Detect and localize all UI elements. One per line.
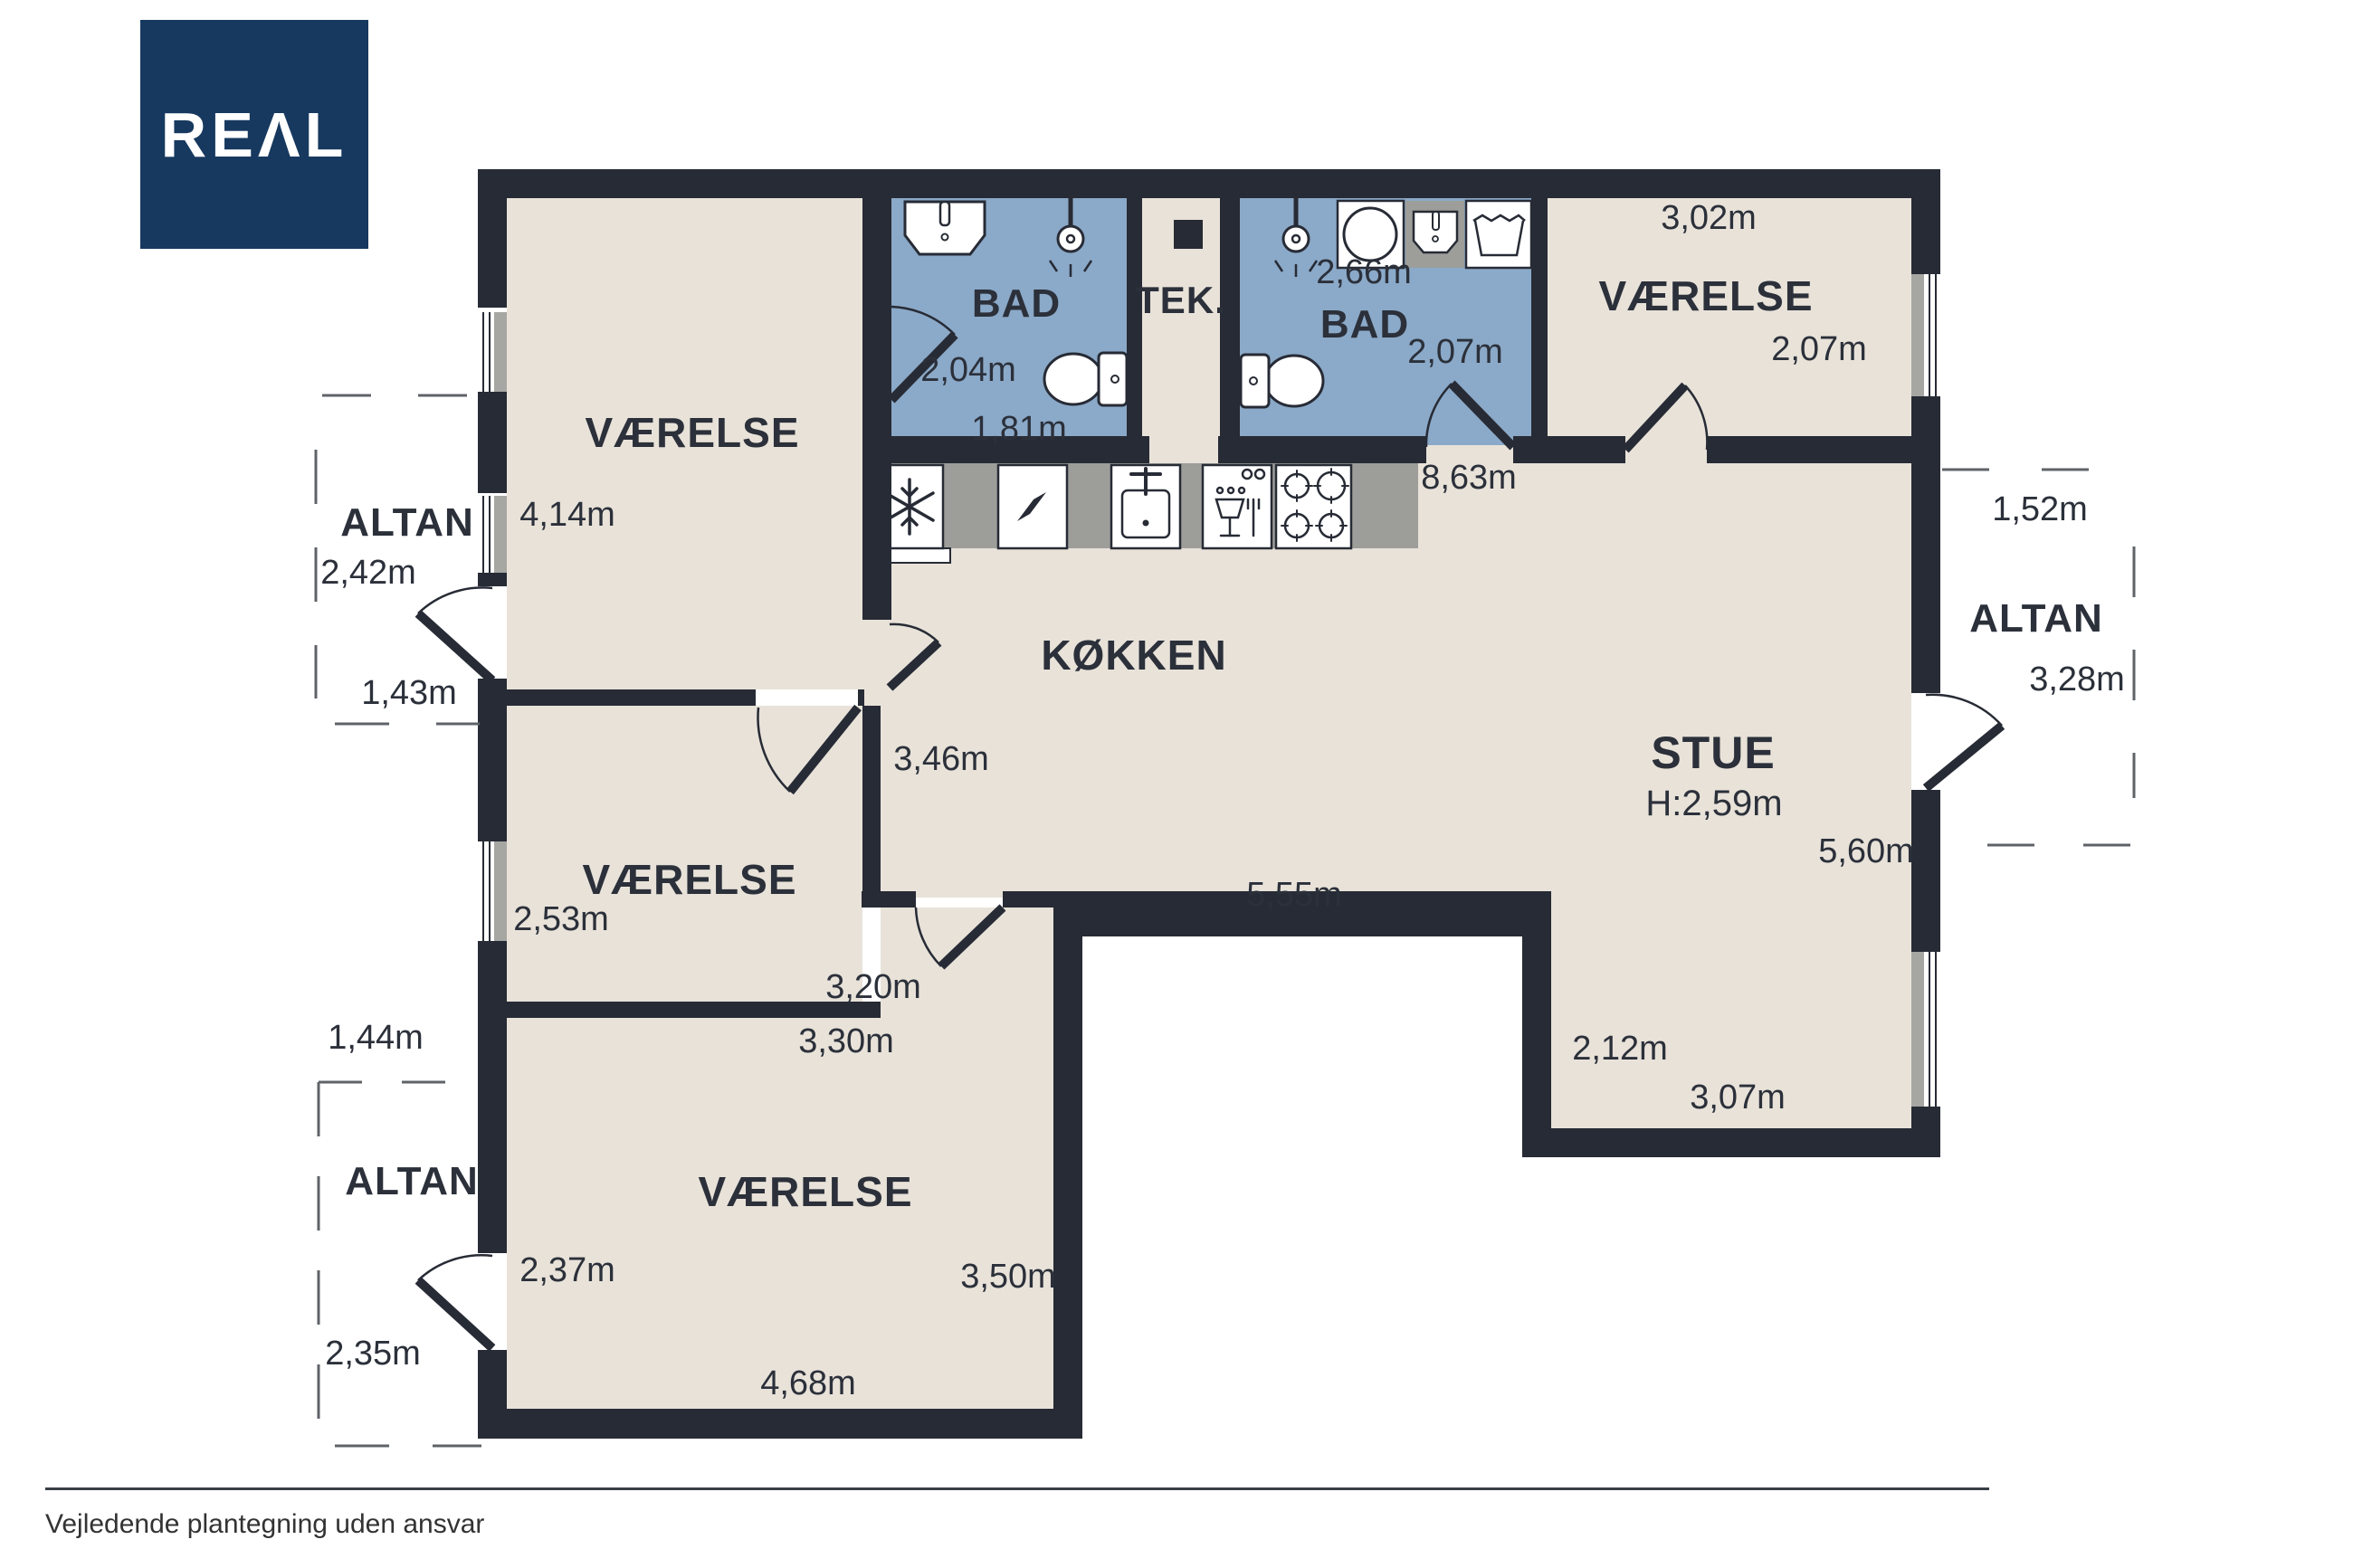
label-dim-h-2-59: H:2,59m [1645, 784, 1782, 823]
label-dim-1-81: 1,81m [971, 410, 1067, 448]
label-dim-5-55: 5,55m [1246, 876, 1342, 914]
wall-kitchen-band [1707, 436, 1911, 463]
wall-room-d-right [1053, 898, 1082, 1409]
label-room-altan-bl: ALTAN [345, 1159, 479, 1203]
laundry-tub-icon [1466, 201, 1531, 268]
real-logo-text: REΛL [161, 99, 348, 171]
wall-tek-bath2 [1220, 198, 1240, 463]
wall-room-a-bottom [507, 689, 756, 706]
label-room-altan-tl: ALTAN [340, 500, 474, 545]
wall-right [1911, 396, 1940, 693]
wall-kitchen-band [1513, 436, 1625, 463]
label-dim-3-46: 3,46m [893, 740, 989, 778]
footer-divider [45, 1487, 1989, 1490]
wall-right [1911, 790, 1940, 952]
wall-room-a-bottom [858, 689, 864, 706]
wall-left [478, 679, 507, 841]
label-room-vaerelse-d: VÆRELSE [698, 1168, 912, 1215]
label-dim-3-30: 3,30m [798, 1022, 894, 1060]
label-dim-4-68: 4,68m [760, 1364, 856, 1402]
dishwasher-icon [1203, 465, 1272, 548]
wall-left [478, 941, 507, 1253]
toilet-icon [1241, 355, 1323, 407]
vent-icon [1174, 220, 1203, 249]
label-dim-3-07: 3,07m [1690, 1079, 1786, 1117]
label-dim-1-43: 1,43m [361, 674, 457, 712]
label-dim-2-12: 2,12m [1572, 1030, 1668, 1068]
label-dim-3-28: 3,28m [2029, 660, 2125, 698]
footer-disclaimer: Vejledende plantegning uden ansvar [45, 1509, 484, 1540]
window [478, 496, 507, 573]
label-dim-2-04: 2,04m [920, 351, 1016, 389]
wall-hall [1003, 891, 1082, 908]
wall-bottom-room-d [478, 1409, 1082, 1439]
sink-icon [1111, 465, 1180, 548]
wall-left [478, 389, 507, 493]
real-logo: REΛL [140, 20, 368, 249]
wall-right [1911, 198, 1940, 274]
label-dim-1-52: 1,52m [1992, 490, 2088, 528]
wall-bath2-room-b [1531, 198, 1548, 463]
wall-room-c-right [862, 706, 881, 908]
label-room-vaerelse-c: VÆRELSE [582, 856, 796, 903]
floorplan-page: VÆRELSE4,14mALTAN2,42m1,43mBAD2,04m1,81m… [0, 0, 2353, 1568]
hand-basin-icon [905, 202, 985, 254]
label-room-tek: TEK. [1136, 279, 1226, 321]
label-dim-2-66: 2,66m [1316, 253, 1412, 291]
label-room-bad-2: BAD [1320, 302, 1409, 347]
door-balcony-right [1926, 695, 2002, 788]
room-c-floor [507, 706, 862, 1002]
label-dim-1-44: 1,44m [328, 1019, 424, 1057]
wall-hall [862, 891, 916, 908]
label-room-vaerelse-b: VÆRELSE [1598, 272, 1813, 319]
label-dim-3-20: 3,20m [825, 968, 921, 1006]
window [1911, 274, 1940, 396]
label-room-vaerelse-a: VÆRELSE [585, 409, 799, 456]
label-dim-8-63: 8,63m [1421, 459, 1517, 497]
hand-basin-icon [1405, 201, 1464, 268]
kitchen-counter [865, 463, 1418, 563]
label-room-bad-1: BAD [972, 281, 1061, 326]
label-room-altan-r: ALTAN [1969, 596, 2103, 641]
label-room-stue: STUE [1651, 727, 1775, 778]
window [1911, 952, 1940, 1107]
door-balcony-tl [418, 587, 492, 680]
label-dim-2-35: 2,35m [325, 1335, 421, 1373]
wall-room-c-bottom [478, 1002, 881, 1018]
label-dim-2-53: 2,53m [513, 900, 609, 938]
balcony-bl-outline [319, 1082, 481, 1446]
cooktop-icon [1276, 465, 1351, 548]
wall-top [478, 169, 1940, 198]
label-dim-5-60: 5,60m [1818, 832, 1914, 870]
label-dim-3-50: 3,50m [960, 1258, 1056, 1296]
label-dim-2-07b: 2,07m [1771, 330, 1867, 368]
label-room-koekken: KØKKEN [1041, 632, 1226, 679]
window [478, 312, 507, 392]
door-balcony-bl [418, 1255, 492, 1348]
stove-icon [998, 465, 1067, 548]
label-dim-2-07: 2,07m [1407, 333, 1503, 371]
label-dim-4-14: 4,14m [519, 496, 615, 534]
window [478, 841, 507, 941]
wall-bottom-stue [1522, 1128, 1940, 1157]
wall-room-a-right [862, 198, 891, 620]
wall-kitchen-band [1218, 436, 1426, 463]
wall-bath1-tek [1127, 198, 1142, 463]
label-dim-2-42: 2,42m [320, 554, 416, 592]
label-dim-2-37: 2,37m [519, 1251, 615, 1289]
wall-left [478, 198, 507, 308]
toilet-icon [1044, 353, 1127, 405]
label-dim-3-02: 3,02m [1661, 199, 1757, 237]
